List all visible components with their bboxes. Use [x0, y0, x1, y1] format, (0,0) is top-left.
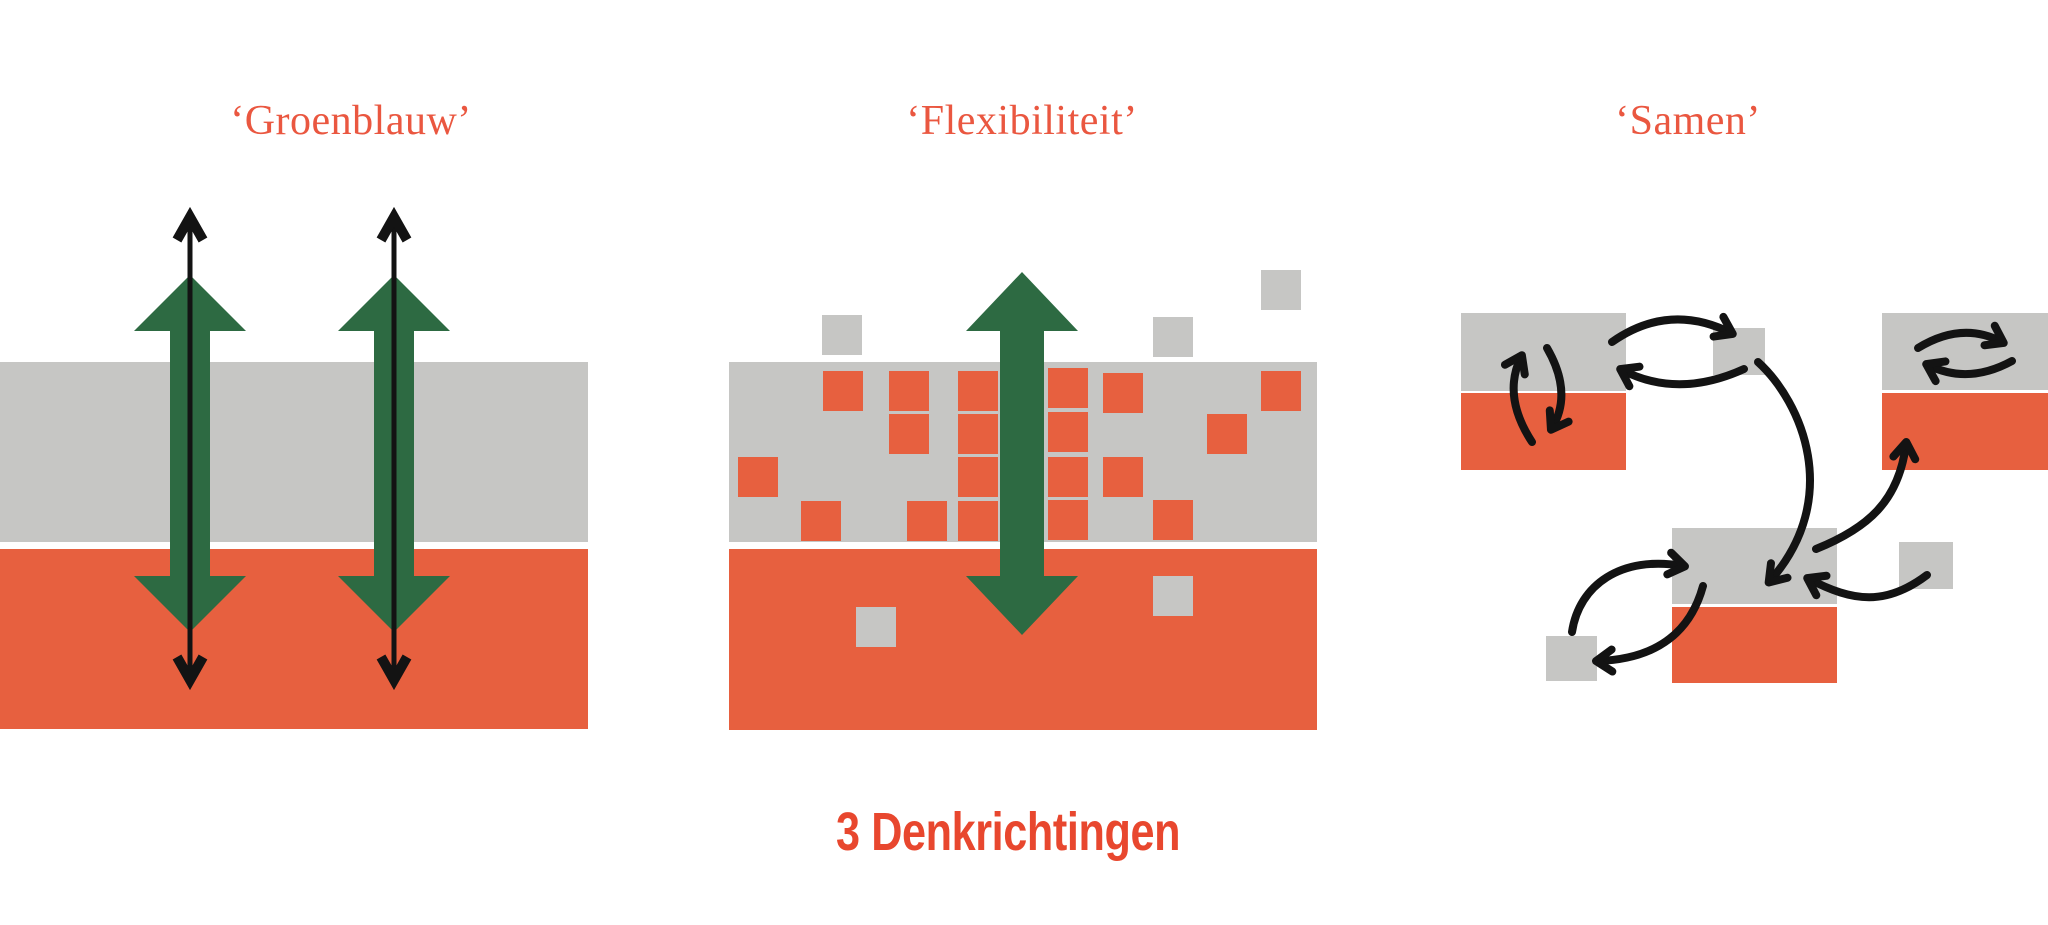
sunken-gray-square [856, 607, 896, 647]
orange-square [958, 501, 998, 541]
samen-square6 [1899, 542, 1953, 589]
orange-square [1103, 373, 1143, 413]
orange-square [907, 501, 947, 541]
samen-block1-gray [1461, 313, 1626, 391]
orange-square [1048, 412, 1088, 452]
orange-square [958, 414, 998, 454]
panel-samen [1461, 313, 2048, 683]
diagram-title-text: 3 Denkrichtingen [836, 801, 1180, 863]
floating-gray-square [1261, 270, 1301, 310]
diagram-canvas: ‘Groenblauw’ ‘Flexibiliteit’ ‘Samen’ [0, 0, 2048, 925]
samen-block4-orange [1672, 607, 1837, 683]
orange-square [889, 371, 929, 411]
floating-gray-square [1153, 317, 1193, 357]
orange-square [1048, 457, 1088, 497]
samen-block1-orange [1461, 393, 1626, 470]
samen-block4-gray [1672, 528, 1837, 604]
floating-gray-square [822, 315, 862, 355]
orange-square [1103, 457, 1143, 497]
groenblauw-orange-band [0, 549, 588, 729]
orange-square [958, 457, 998, 497]
panel-groenblauw [0, 217, 588, 729]
groenblauw-gray-band [0, 362, 588, 542]
orange-square [801, 501, 841, 541]
orange-square [1048, 500, 1088, 540]
orange-square [1153, 500, 1193, 540]
orange-square [1261, 371, 1301, 411]
panel-flexibiliteit [729, 270, 1317, 730]
orange-square [823, 371, 863, 411]
orange-square [1207, 414, 1247, 454]
samen-block3-gray [1882, 313, 2048, 390]
orange-square [738, 457, 778, 497]
cycle-square5-block4-upper-arrow-icon [1572, 564, 1683, 632]
diagram-title: 3 Denkrichtingen [708, 801, 1308, 863]
orange-square [889, 414, 929, 454]
sunken-gray-square [1153, 576, 1193, 616]
samen-square5 [1546, 636, 1597, 681]
orange-square [958, 371, 998, 411]
orange-square [1048, 368, 1088, 408]
diagram-graphics [0, 0, 2048, 925]
